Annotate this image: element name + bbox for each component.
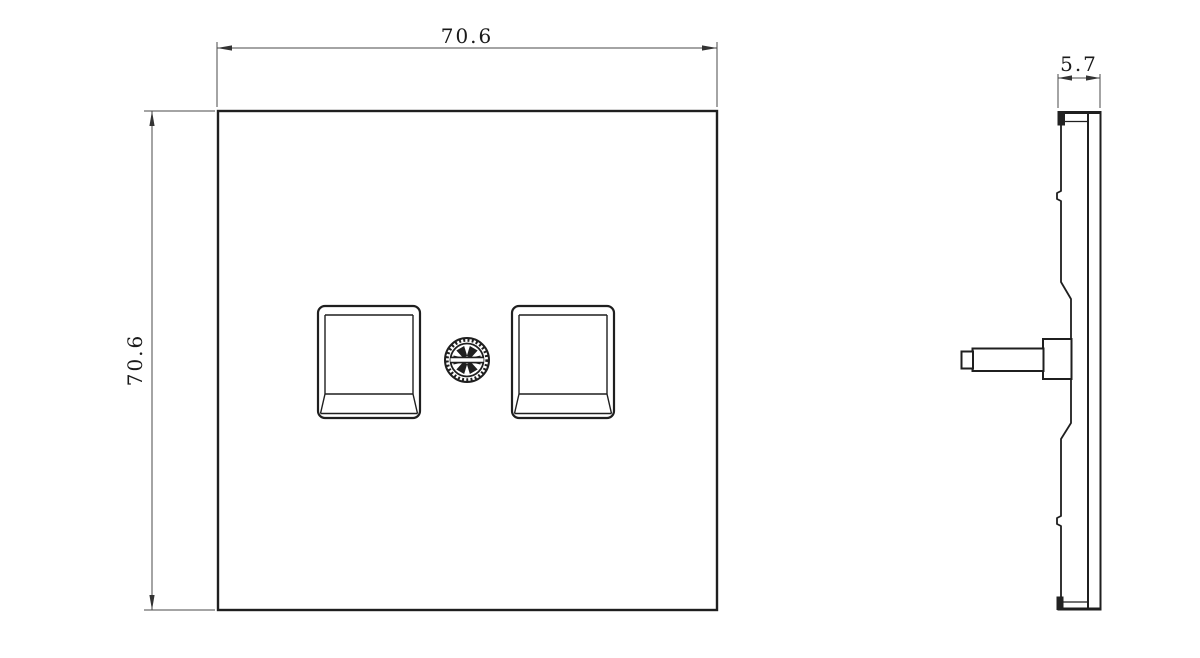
arrowhead-right	[702, 45, 717, 50]
front-view	[218, 111, 717, 610]
bottom-clip-block	[1057, 597, 1064, 611]
top-clip-block	[1058, 111, 1066, 126]
center-screw	[445, 338, 489, 382]
faceplate-edge	[1088, 112, 1101, 610]
side-view	[962, 111, 1102, 610]
arrowhead-left	[1058, 75, 1072, 80]
arrowhead-top	[149, 111, 154, 126]
dim-front-height: 70.6	[123, 111, 215, 610]
screw-tip-side	[962, 352, 974, 369]
dim-text-front-width: 70.6	[441, 24, 494, 48]
opening-outer-frame	[512, 306, 614, 418]
screw-boss-side	[1043, 339, 1072, 379]
arrowhead-bottom	[149, 595, 154, 610]
opening-outer-frame	[318, 306, 420, 418]
dim-text-side-depth: 5.7	[1060, 52, 1098, 76]
screw-shaft-side	[973, 349, 1044, 372]
dim-side-depth: 5.7	[1058, 52, 1100, 108]
dim-front-width: 70.6	[217, 24, 717, 107]
drawing-sheet: 70.6 70.6 5.7	[0, 0, 1200, 658]
arrowhead-right	[1086, 75, 1100, 80]
arrowhead-left	[217, 45, 232, 50]
keystone-opening-right	[512, 306, 614, 418]
dim-text-front-height: 70.6	[123, 334, 147, 387]
drawing-canvas: 70.6 70.6 5.7	[0, 0, 1200, 658]
keystone-opening-left	[318, 306, 420, 418]
